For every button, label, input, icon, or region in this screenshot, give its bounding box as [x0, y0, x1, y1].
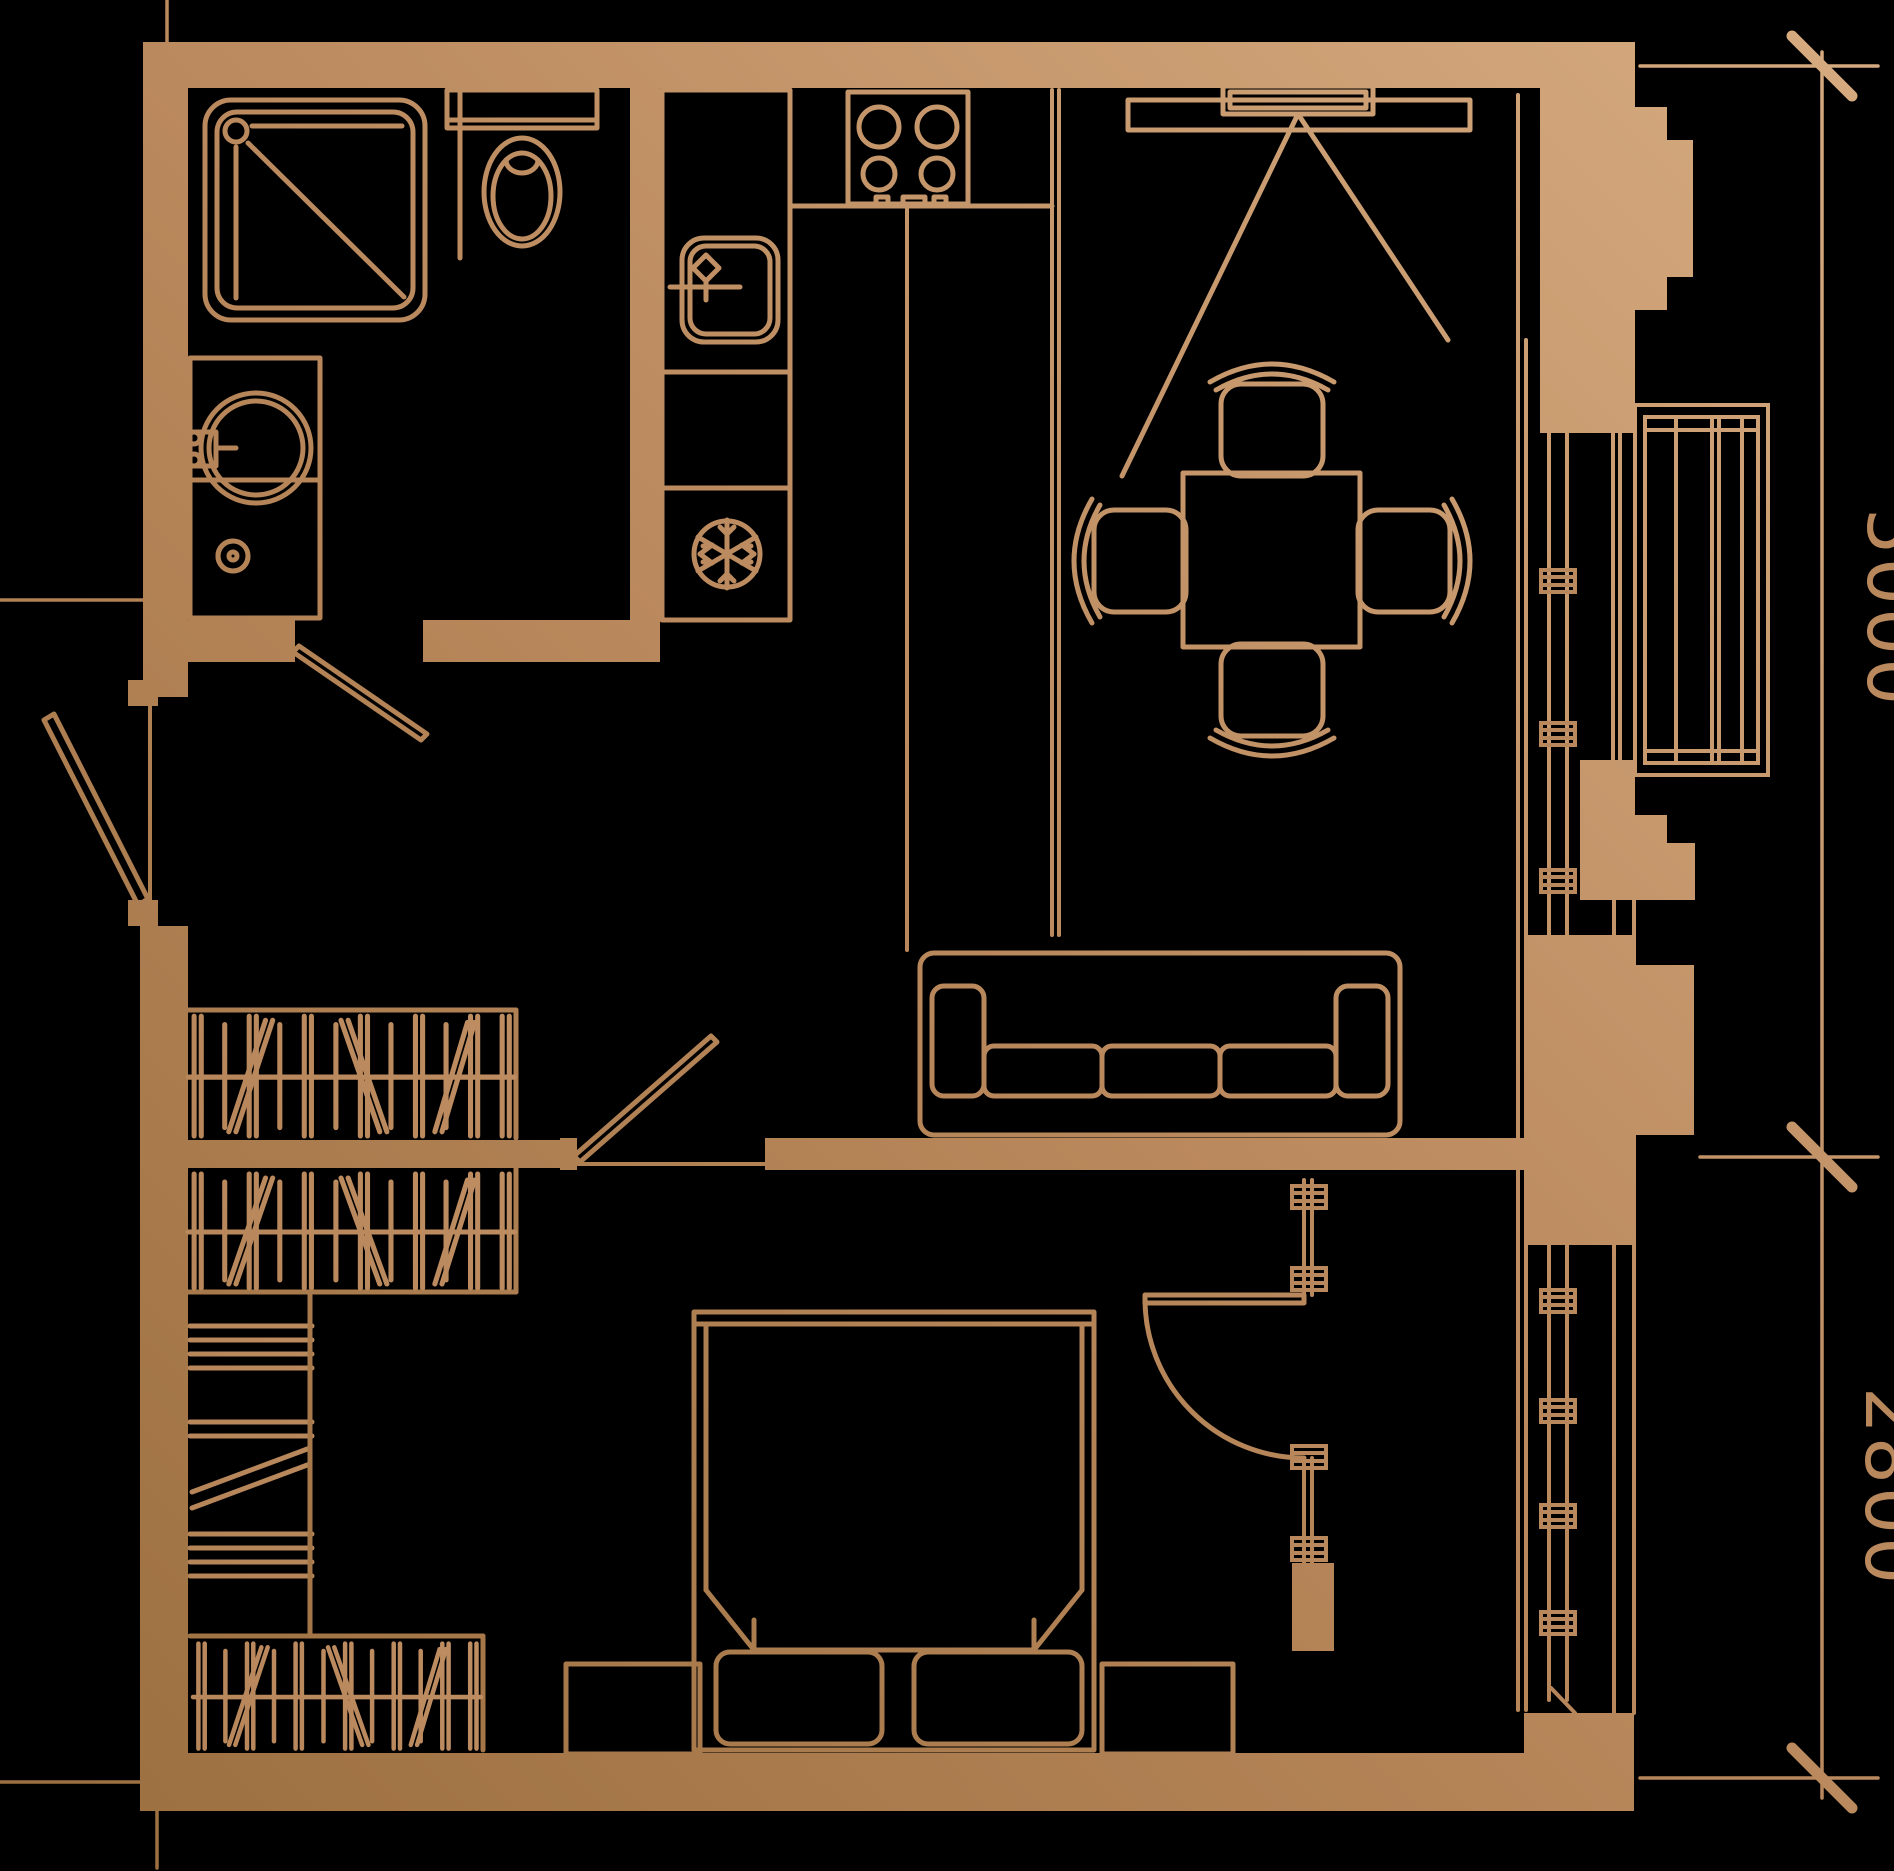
nightstand-left: [566, 1664, 700, 1754]
kitchen-sink: [670, 238, 778, 342]
stove: [848, 92, 968, 206]
wall-pier-top-right: [1540, 88, 1635, 433]
bedroom-glazing: [1541, 1245, 1575, 1713]
nightstand-right: [1102, 1664, 1233, 1754]
tv-view-line-right: [1298, 114, 1448, 340]
wall-pier-middle-step: [1636, 965, 1694, 1135]
wall-corner-bottom-right: [1524, 1713, 1634, 1811]
faucet-icon: [693, 255, 719, 281]
wall-divider-right: [765, 1138, 1524, 1170]
bedroom-door-swing-arc: [1145, 1299, 1304, 1458]
entry-door-leaf: [44, 714, 148, 905]
wall-pier-middle-right: [1524, 935, 1636, 1245]
entry-door-jamb-top: [128, 680, 158, 706]
toilet: [447, 90, 597, 246]
pillow-left: [716, 1652, 882, 1744]
blanket-fold-right: [1034, 1590, 1082, 1650]
bathroom-door-leaf: [293, 646, 427, 740]
wall-top: [143, 42, 1635, 88]
sofa-armrest-left: [932, 986, 984, 1096]
wall-bathroom-bottom-right: [423, 620, 660, 662]
sofa-cushion: [984, 1046, 1102, 1096]
dining-chair-bottom: [1210, 644, 1334, 756]
right-wall-inner-line: [1518, 95, 1526, 1710]
dining-chair-top: [1210, 364, 1334, 476]
sofa-cushion: [1102, 1046, 1220, 1096]
shelf-stack: [190, 1292, 312, 1636]
wall-bottom: [140, 1753, 1534, 1811]
pillow-right: [914, 1652, 1082, 1744]
shower-head-icon: [225, 120, 247, 142]
floor-plan-canvas: 5000 2800: [0, 0, 1894, 1871]
refrigerator: [694, 520, 760, 588]
bedroom-door: [1145, 1295, 1304, 1458]
wall-divider-left: [183, 1140, 562, 1168]
bedroom-door-leaf: [1145, 1295, 1304, 1303]
balcony-window: [1613, 405, 1768, 775]
shower-door-line: [248, 143, 404, 297]
blanket-fold-left: [706, 1590, 754, 1650]
glass-partition: [1292, 1180, 1326, 1563]
wall-balcony-base: [1580, 760, 1695, 900]
double-bed: [694, 1312, 1094, 1750]
tv: [1122, 86, 1448, 476]
tv-view-line-left: [1122, 114, 1298, 476]
wall-bathroom-bottom-left: [183, 620, 295, 662]
floor-plan: 5000 2800: [0, 0, 1894, 1871]
dining-chair-right: [1358, 499, 1470, 623]
wall-left-lower: [140, 926, 188, 1811]
wardrobe-rail-lower: [190, 1636, 483, 1750]
dining-chair-left: [1074, 499, 1186, 623]
dimension-label-2800: 2800: [1848, 1387, 1894, 1587]
shower: [205, 100, 425, 320]
dining-table: [1183, 473, 1360, 647]
sofa-cushion: [1220, 1046, 1336, 1096]
sofa: [920, 953, 1400, 1135]
wall-bathroom-right: [630, 88, 660, 620]
wardrobe-rail-upper: [188, 1168, 516, 1292]
dimension-label-5000: 5000: [1850, 508, 1894, 708]
living-glazing: [1541, 433, 1575, 935]
kitchen-zone-line: [907, 90, 1059, 950]
sofa-armrest-right: [1336, 986, 1388, 1096]
kitchen-counter: [662, 90, 1052, 620]
wall-left-upper: [143, 88, 188, 697]
wall-pier-top-right-step: [1635, 107, 1693, 310]
wall-partition-stub: [1292, 1563, 1334, 1651]
wardrobe-door-leaf: [574, 1036, 717, 1162]
coat-rack: [188, 1010, 516, 1138]
